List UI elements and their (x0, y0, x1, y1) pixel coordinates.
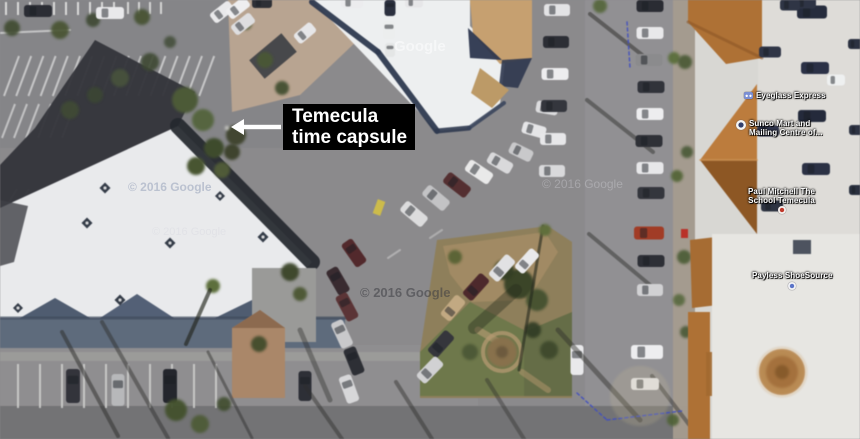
google-watermark: © 2016 Google (128, 180, 212, 194)
poi-circle-icon (736, 120, 746, 130)
annotation-callout: Temecula time capsule (283, 104, 415, 150)
poi-label-text: Paul Mitchell TheSchool Temecula (748, 188, 815, 205)
eyeglasses-icon (744, 92, 753, 99)
annotation-line2: time capsule (292, 127, 409, 148)
google-watermark: © 2016 Google (542, 177, 623, 191)
satellite-map-view: Eyeglass ExpressSunco Mart andMailing Ce… (0, 0, 860, 439)
poi-red-icon (778, 206, 786, 214)
map-overlays: Eyeglass ExpressSunco Mart andMailing Ce… (0, 0, 860, 439)
google-watermark: © 2016 Google (360, 285, 451, 300)
poi-label-text: Payless ShoeSource (752, 272, 833, 281)
poi-label-payless-shoesource[interactable]: Payless ShoeSource (752, 272, 833, 290)
google-watermark: © 2016 Google (152, 226, 226, 238)
poi-label-mart-mailing-center[interactable]: Sunco Mart andMailing Centre of... (736, 120, 823, 137)
poi-label-text: Eyeglass Express (756, 92, 826, 101)
poi-label-text: Sunco Mart andMailing Centre of... (749, 120, 823, 137)
arrow-icon (231, 119, 283, 135)
poi-label-paul-mitchell-school[interactable]: Paul Mitchell TheSchool Temecula (748, 188, 815, 214)
google-watermark: Google (394, 38, 446, 55)
poi-label-eyeglass-express[interactable]: Eyeglass Express (744, 92, 826, 101)
poi-blue-icon (788, 282, 796, 290)
annotation-line1: Temecula (292, 106, 409, 127)
